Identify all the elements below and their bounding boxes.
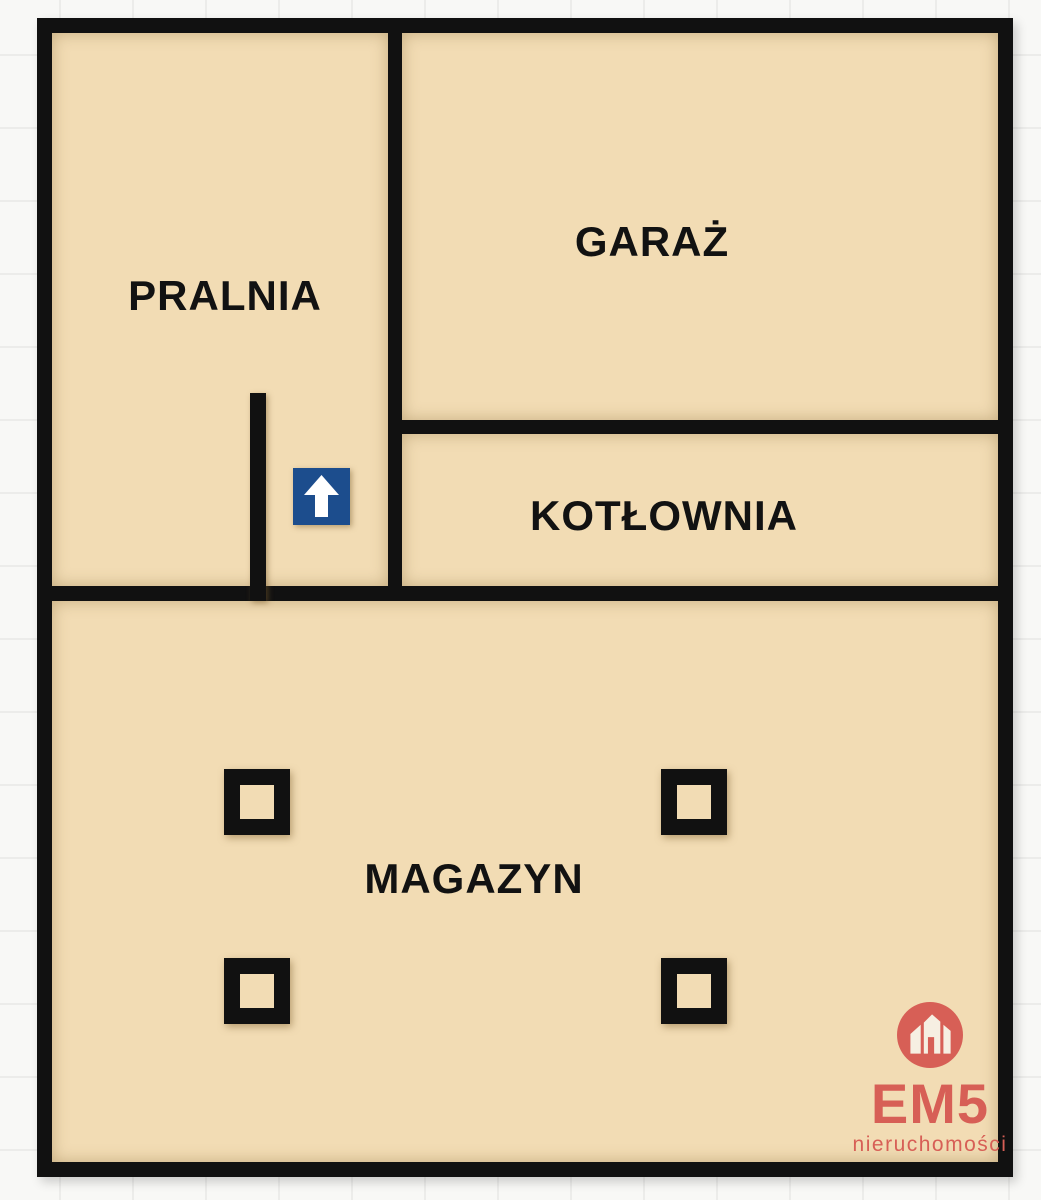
room-label-pralnia: PRALNIA [128, 272, 322, 320]
room-label-magazyn: MAGAZYN [364, 855, 583, 903]
room-label-garaz: GARAŻ [575, 218, 729, 266]
logo-subtitle-text: nieruchomości [853, 1133, 1008, 1157]
structural-column [661, 958, 727, 1024]
entrance-arrow-icon [293, 468, 350, 525]
logo-brand-text: EM5 [871, 1079, 989, 1129]
brand-logo: EM5 nieruchomości [823, 1002, 1037, 1157]
structural-column [224, 958, 290, 1024]
room-label-kotlownia: KOTŁOWNIA [530, 492, 798, 540]
structural-column [224, 769, 290, 835]
structural-column [661, 769, 727, 835]
canvas-background: PRALNIA GARAŻ KOTŁOWNIA MAGAZYN EM5 nier… [0, 0, 1041, 1200]
interior-wall-stub [250, 393, 266, 601]
house-icon [897, 1002, 963, 1068]
floorplan: PRALNIA GARAŻ KOTŁOWNIA MAGAZYN EM5 nier… [37, 18, 1013, 1177]
